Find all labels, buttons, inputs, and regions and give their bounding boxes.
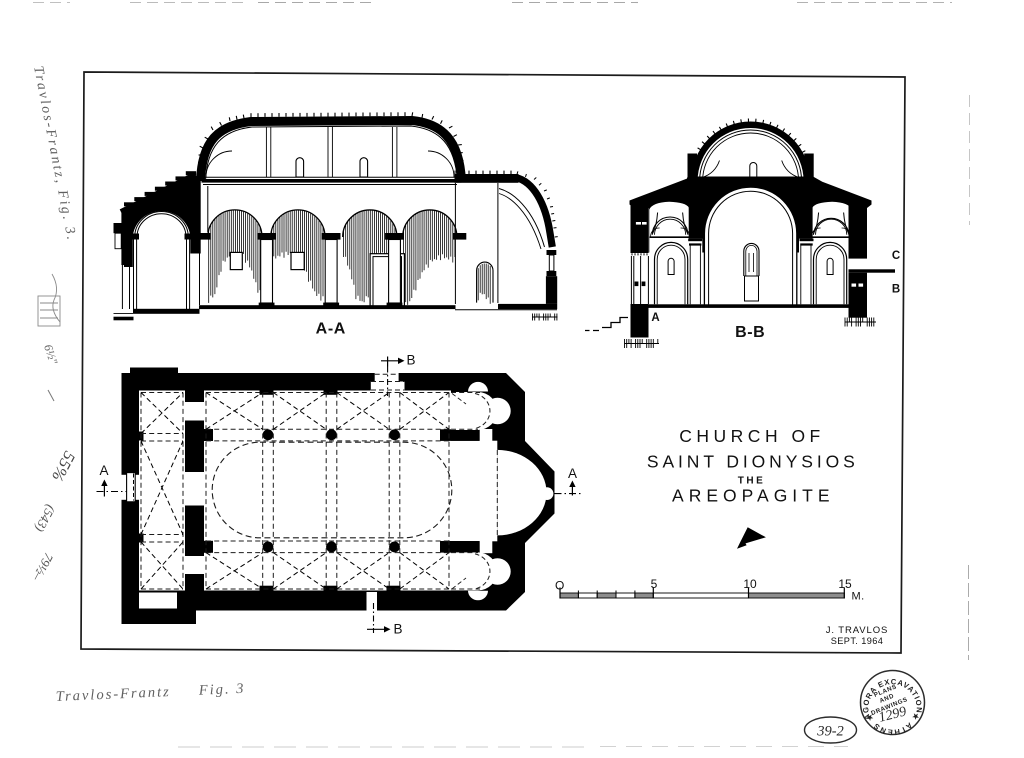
svg-text:A: A — [568, 466, 577, 481]
svg-text:15: 15 — [838, 577, 852, 591]
svg-text:C: C — [892, 250, 900, 262]
svg-text:J. TRAVLOS: J. TRAVLOS — [826, 625, 889, 636]
svg-text:AREOPAGITE: AREOPAGITE — [672, 486, 834, 506]
svg-text:10: 10 — [743, 577, 757, 591]
svg-text:O: O — [555, 579, 564, 593]
svg-text:39-2: 39-2 — [816, 724, 844, 740]
svg-text:A: A — [651, 312, 659, 324]
svg-text:A: A — [99, 463, 108, 478]
svg-text:B-B: B-B — [735, 324, 765, 341]
svg-text:B: B — [394, 622, 403, 637]
svg-text:SAINT DIONYSIOS: SAINT DIONYSIOS — [647, 452, 859, 472]
svg-text:A-A: A-A — [316, 321, 346, 338]
svg-text:CHURCH OF: CHURCH OF — [679, 426, 825, 446]
svg-text:B: B — [407, 353, 416, 368]
svg-text:B: B — [892, 283, 900, 295]
svg-text:M.: M. — [852, 591, 865, 603]
svg-text:SEPT. 1964: SEPT. 1964 — [831, 636, 884, 646]
svg-text:5: 5 — [651, 577, 658, 591]
